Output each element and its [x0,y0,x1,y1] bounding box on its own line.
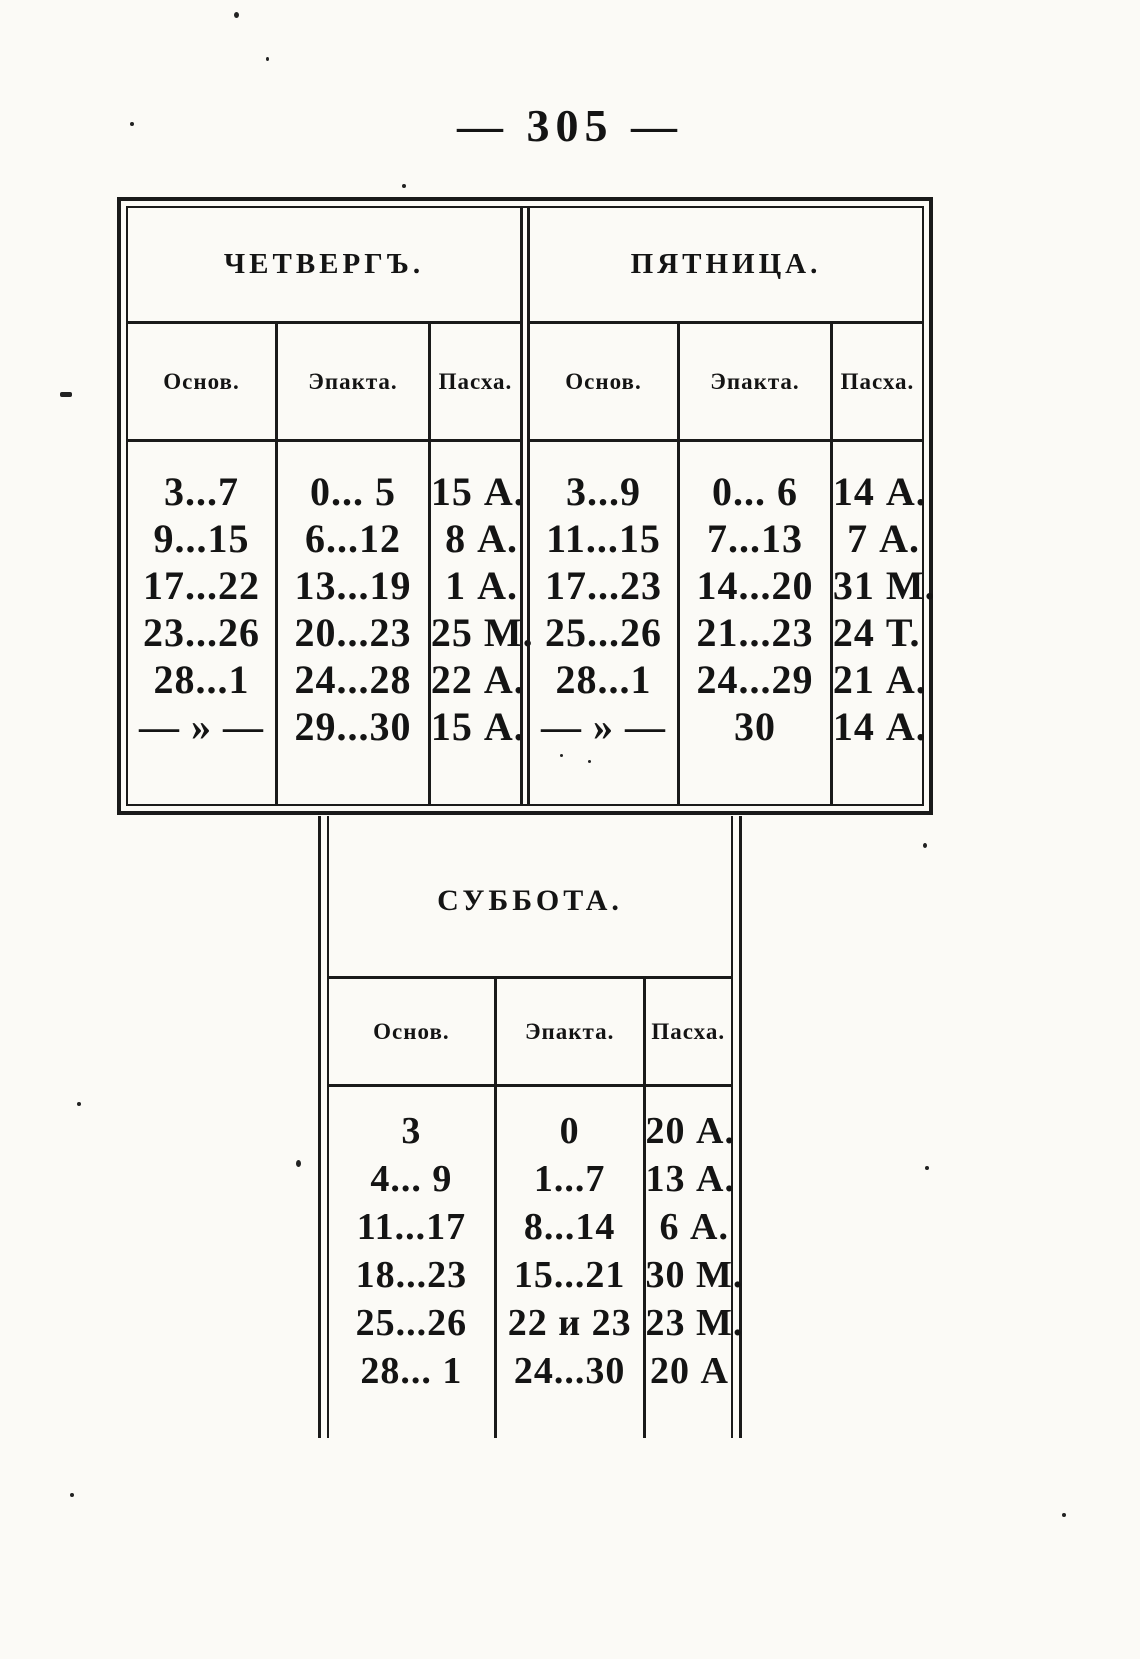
scan-speck [296,1160,301,1167]
scan-speck [925,1166,929,1170]
friday-section: ПЯТНИЦА. Основ. 3...9 11...15 17...23 25… [530,208,922,804]
table-cell: 22 и 23 [497,1299,643,1347]
friday-body: Основ. 3...9 11...15 17...23 25...26 28.… [530,321,922,804]
saturday-table: СУББОТА. Основ. 3 4... 9 11...17 18...23… [318,816,742,1438]
thursday-section: ЧЕТВЕРГЪ. Основ. 3...7 9...15 17...22 23… [128,208,520,804]
table-cell: 22 А. [431,656,520,703]
saturday-column-epakta: Эпакта. 0 1...7 8...14 15...21 22 и 23 2… [494,979,643,1438]
column-cells: 20 А. 13 А. 6 А. 30 М. 23 М. 20 А [646,1087,731,1438]
table-cell: 9...15 [128,515,275,562]
table-cell: 29...30 [278,703,428,750]
column-cells: 0 1...7 8...14 15...21 22 и 23 24...30 [497,1087,643,1438]
friday-column-osnov: Основ. 3...9 11...15 17...23 25...26 28.… [530,324,677,804]
thursday-friday-table: ЧЕТВЕРГЪ. Основ. 3...7 9...15 17...22 23… [117,197,933,815]
thursday-column-pasha: Пасха. 15 А. 8 А. 1 А. 25 М. 22 А. 15 А. [428,324,520,804]
scan-speck [234,12,239,18]
column-cells: 0... 5 6...12 13...19 20...23 24...28 29… [278,442,428,804]
table-cell: 28...1 [530,656,677,703]
table-cell: — » — [530,703,677,750]
table-cell: 30 [680,703,830,750]
table-cell: 17...23 [530,562,677,609]
table-cell: 6 А. [646,1203,731,1251]
saturday-inner-frame: СУББОТА. Основ. 3 4... 9 11...17 18...23… [327,816,733,1438]
column-header-osnov: Основ. [329,979,494,1087]
table-cell: 15 А. [431,703,520,750]
scan-speck [588,760,591,763]
table-cell: 7 А. [833,515,922,562]
scan-speck [70,1493,74,1497]
table-cell: 24...29 [680,656,830,703]
table-cell: 6...12 [278,515,428,562]
thursday-column-epakta: Эпакта. 0... 5 6...12 13...19 20...23 24… [275,324,428,804]
saturday-title: СУББОТА. [329,816,731,976]
friday-column-epakta: Эпакта. 0... 6 7...13 14...20 21...23 24… [677,324,830,804]
saturday-body: Основ. 3 4... 9 11...17 18...23 25...26 … [329,976,731,1438]
table-cell: 17...22 [128,562,275,609]
column-header-pasha: Пасха. [646,979,731,1087]
table-cell: 24...30 [497,1347,643,1395]
scan-speck [77,1102,81,1106]
table-cell: 1 А. [431,562,520,609]
column-cells: 14 А. 7 А. 31 М. 24 Т. 21 А. 14 А. [833,442,922,804]
thursday-column-osnov: Основ. 3...7 9...15 17...22 23...26 28..… [128,324,275,804]
scan-speck [560,754,563,757]
table-cell: 15 А. [431,468,520,515]
table-cell: 0... 6 [680,468,830,515]
table-cell: 23 М. [646,1299,731,1347]
column-cells: 3 4... 9 11...17 18...23 25...26 28... 1 [329,1087,494,1438]
column-cells: 3...7 9...15 17...22 23...26 28...1 — » … [128,442,275,804]
friday-title: ПЯТНИЦА. [530,208,922,321]
table-cell: 14 А. [833,703,922,750]
table-cell: 3 [329,1107,494,1155]
thursday-body: Основ. 3...7 9...15 17...22 23...26 28..… [128,321,520,804]
table-cell: 13...19 [278,562,428,609]
table-cell: 18...23 [329,1251,494,1299]
friday-column-pasha: Пасха. 14 А. 7 А. 31 М. 24 Т. 21 А. 14 А… [830,324,922,804]
table-cell: 3...9 [530,468,677,515]
column-header-epakta: Эпакта. [497,979,643,1087]
table-cell: 28...1 [128,656,275,703]
table-cell: 11...15 [530,515,677,562]
column-header-epakta: Эпакта. [278,324,428,442]
column-header-osnov: Основ. [530,324,677,442]
scan-speck [60,392,72,397]
scan-speck [130,122,134,126]
table-cell: 20 А. [646,1107,731,1155]
scan-speck [402,184,406,188]
table-cell: 31 М. [833,562,922,609]
saturday-column-osnov: Основ. 3 4... 9 11...17 18...23 25...26 … [329,979,494,1438]
table-inner-frame: ЧЕТВЕРГЪ. Основ. 3...7 9...15 17...22 23… [126,206,924,806]
table-cell: 14 А. [833,468,922,515]
thursday-title: ЧЕТВЕРГЪ. [128,208,520,321]
scan-speck [266,57,269,61]
table-cell: 21 А. [833,656,922,703]
table-cell: 14...20 [680,562,830,609]
column-cells: 3...9 11...15 17...23 25...26 28...1 — »… [530,442,677,804]
scan-speck [1062,1513,1066,1517]
table-cell: 13 А. [646,1155,731,1203]
saturday-column-pasha: Пасха. 20 А. 13 А. 6 А. 30 М. 23 М. 20 А [643,979,731,1438]
table-cell: 0 [497,1107,643,1155]
table-cell: 24 Т. [833,609,922,656]
table-cell: — » — [128,703,275,750]
table-cell: 20 А [646,1347,731,1395]
table-cell: 28... 1 [329,1347,494,1395]
center-double-divider [520,208,530,804]
table-cell: 20...23 [278,609,428,656]
table-cell: 30 М. [646,1251,731,1299]
table-cell: 25...26 [530,609,677,656]
table-cell: 7...13 [680,515,830,562]
table-cell: 8...14 [497,1203,643,1251]
column-header-pasha: Пасха. [833,324,922,442]
table-cell: 0... 5 [278,468,428,515]
table-cell: 25...26 [329,1299,494,1347]
table-cell: 3...7 [128,468,275,515]
column-header-osnov: Основ. [128,324,275,442]
column-header-pasha: Пасха. [431,324,520,442]
scan-speck [923,843,927,848]
table-cell: 25 М. [431,609,520,656]
table-cell: 21...23 [680,609,830,656]
table-cell: 1...7 [497,1155,643,1203]
table-cell: 23...26 [128,609,275,656]
column-header-epakta: Эпакта. [680,324,830,442]
table-cell: 4... 9 [329,1155,494,1203]
table-cell: 8 А. [431,515,520,562]
page-number: — 305 — [0,100,1140,152]
table-cell: 15...21 [497,1251,643,1299]
table-cell: 11...17 [329,1203,494,1251]
column-cells: 15 А. 8 А. 1 А. 25 М. 22 А. 15 А. [431,442,520,804]
table-cell: 24...28 [278,656,428,703]
column-cells: 0... 6 7...13 14...20 21...23 24...29 30 [680,442,830,804]
